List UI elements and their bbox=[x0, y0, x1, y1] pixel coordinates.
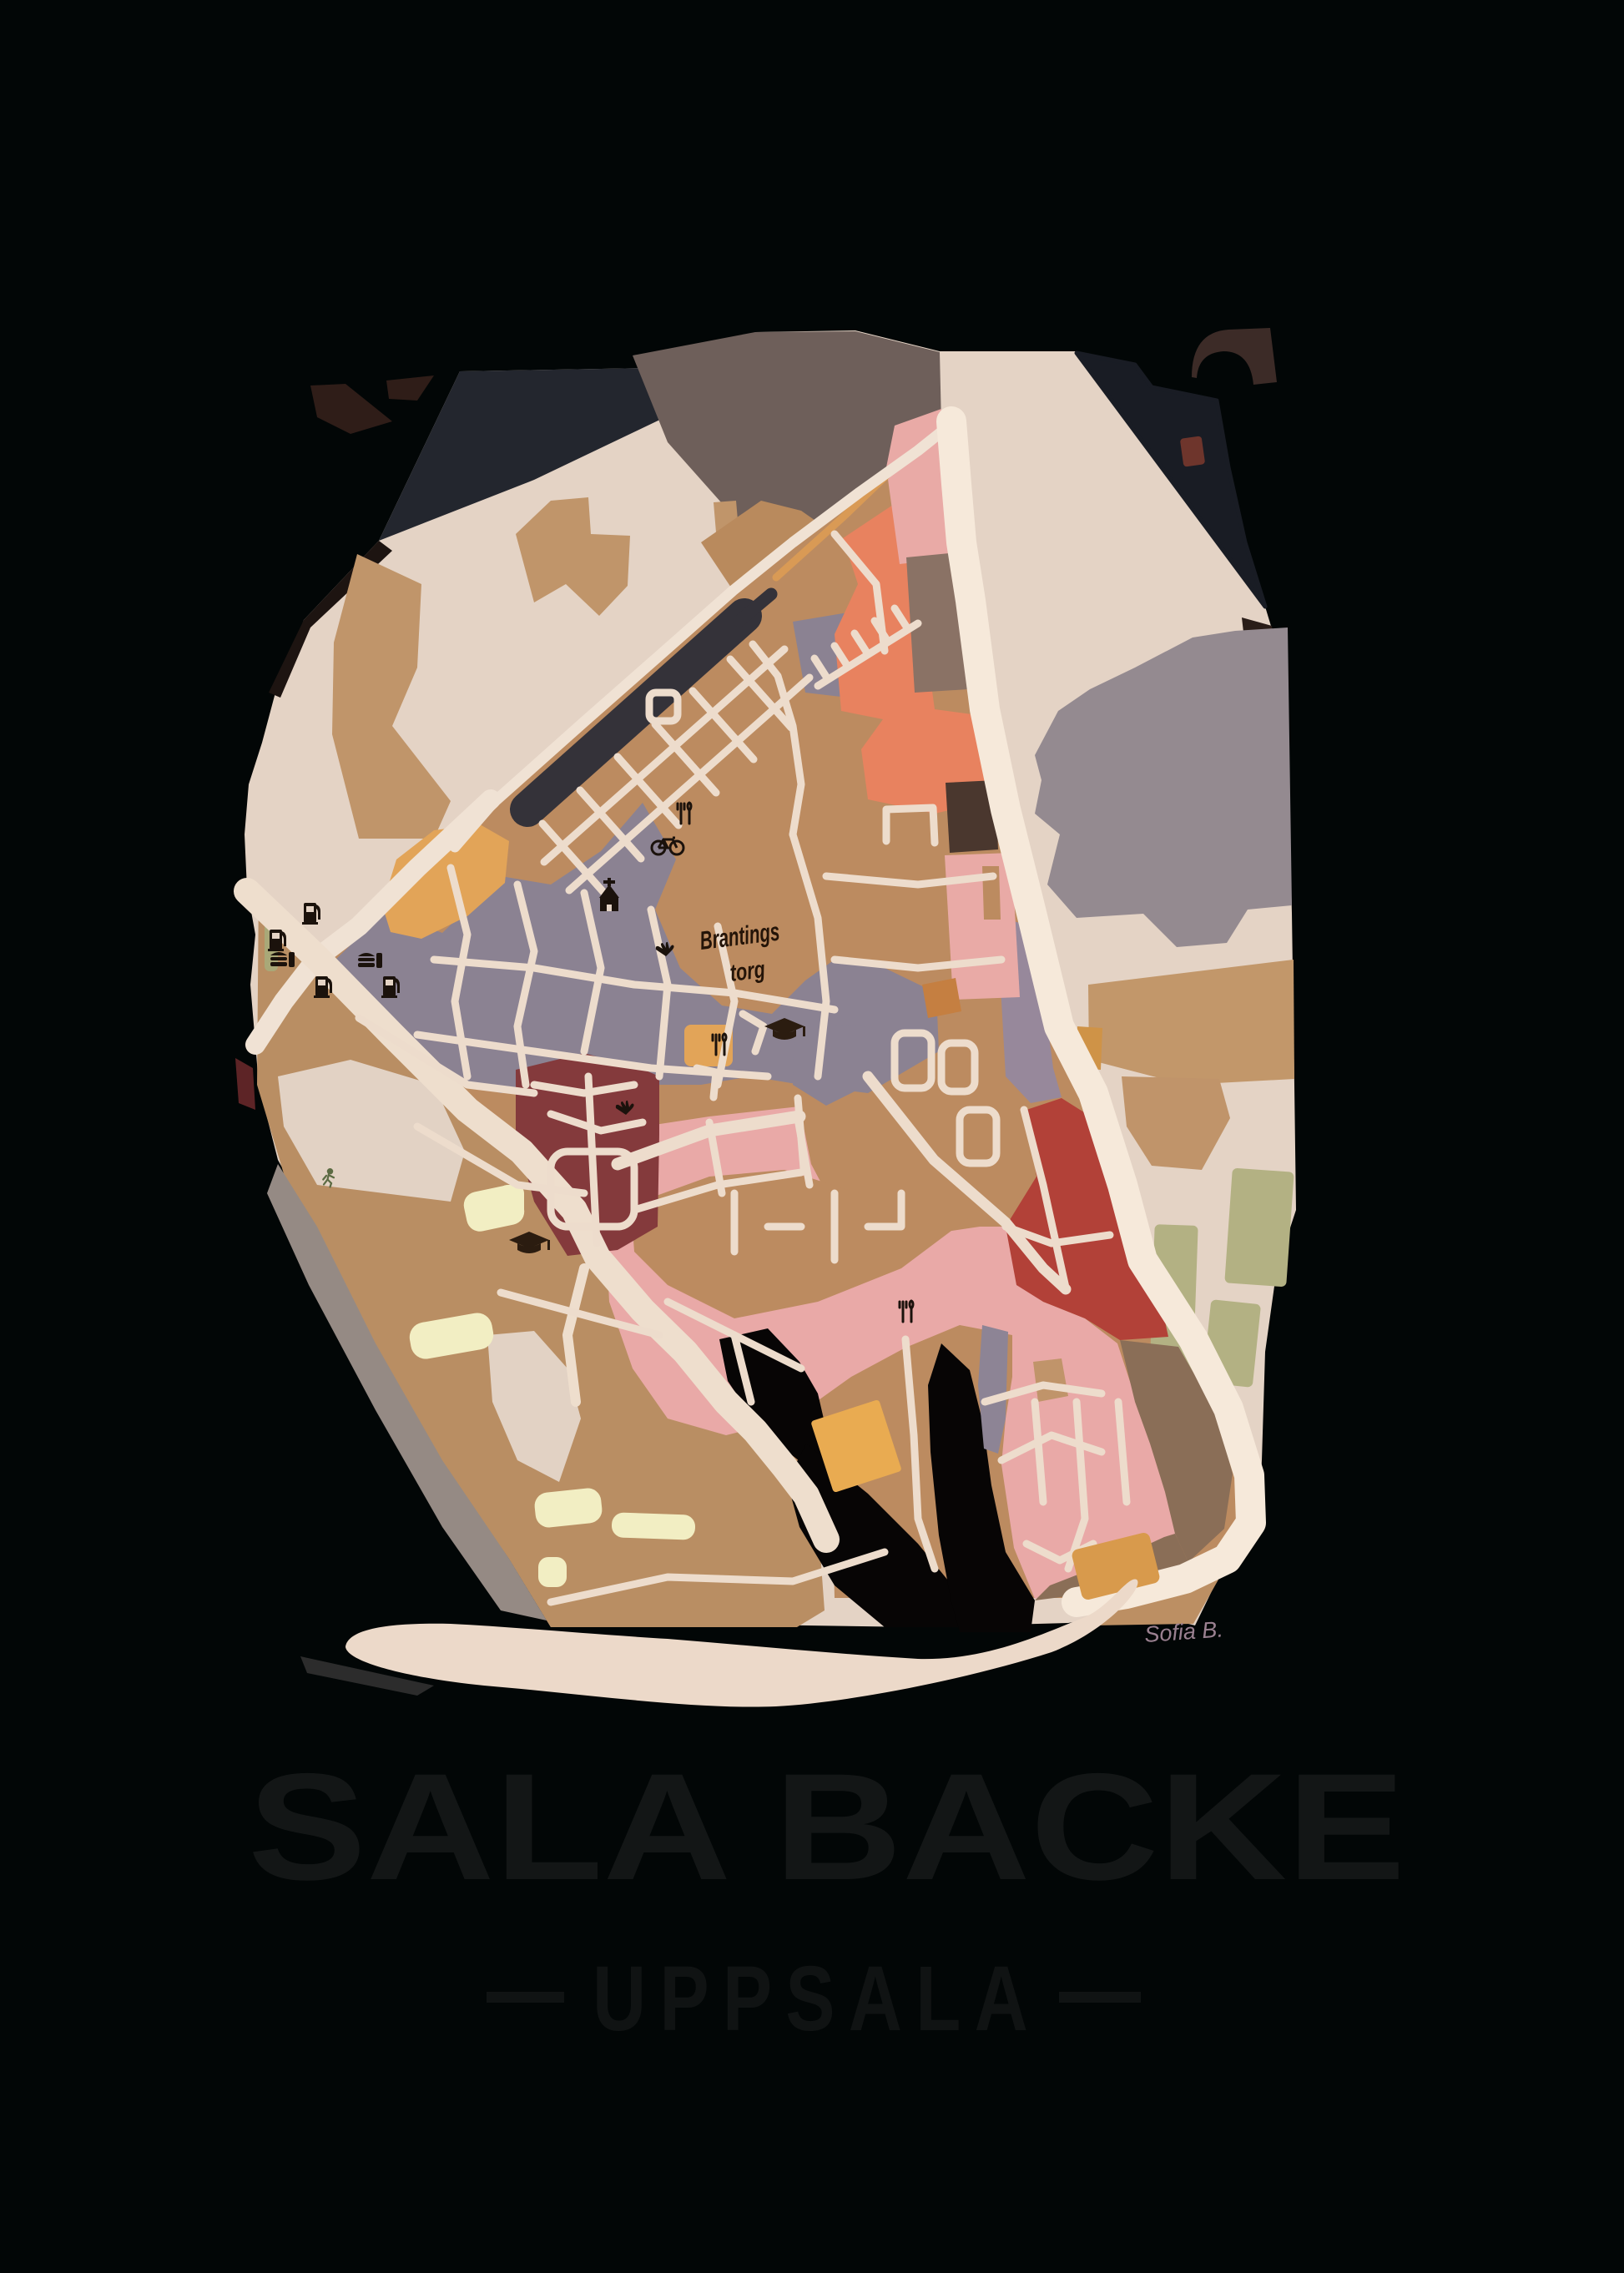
svg-text:UPPSALA: UPPSALA bbox=[593, 1948, 1041, 2050]
svg-text:SALA BACKE: SALA BACKE bbox=[248, 1741, 1405, 1912]
svg-text:torg: torg bbox=[729, 956, 767, 987]
